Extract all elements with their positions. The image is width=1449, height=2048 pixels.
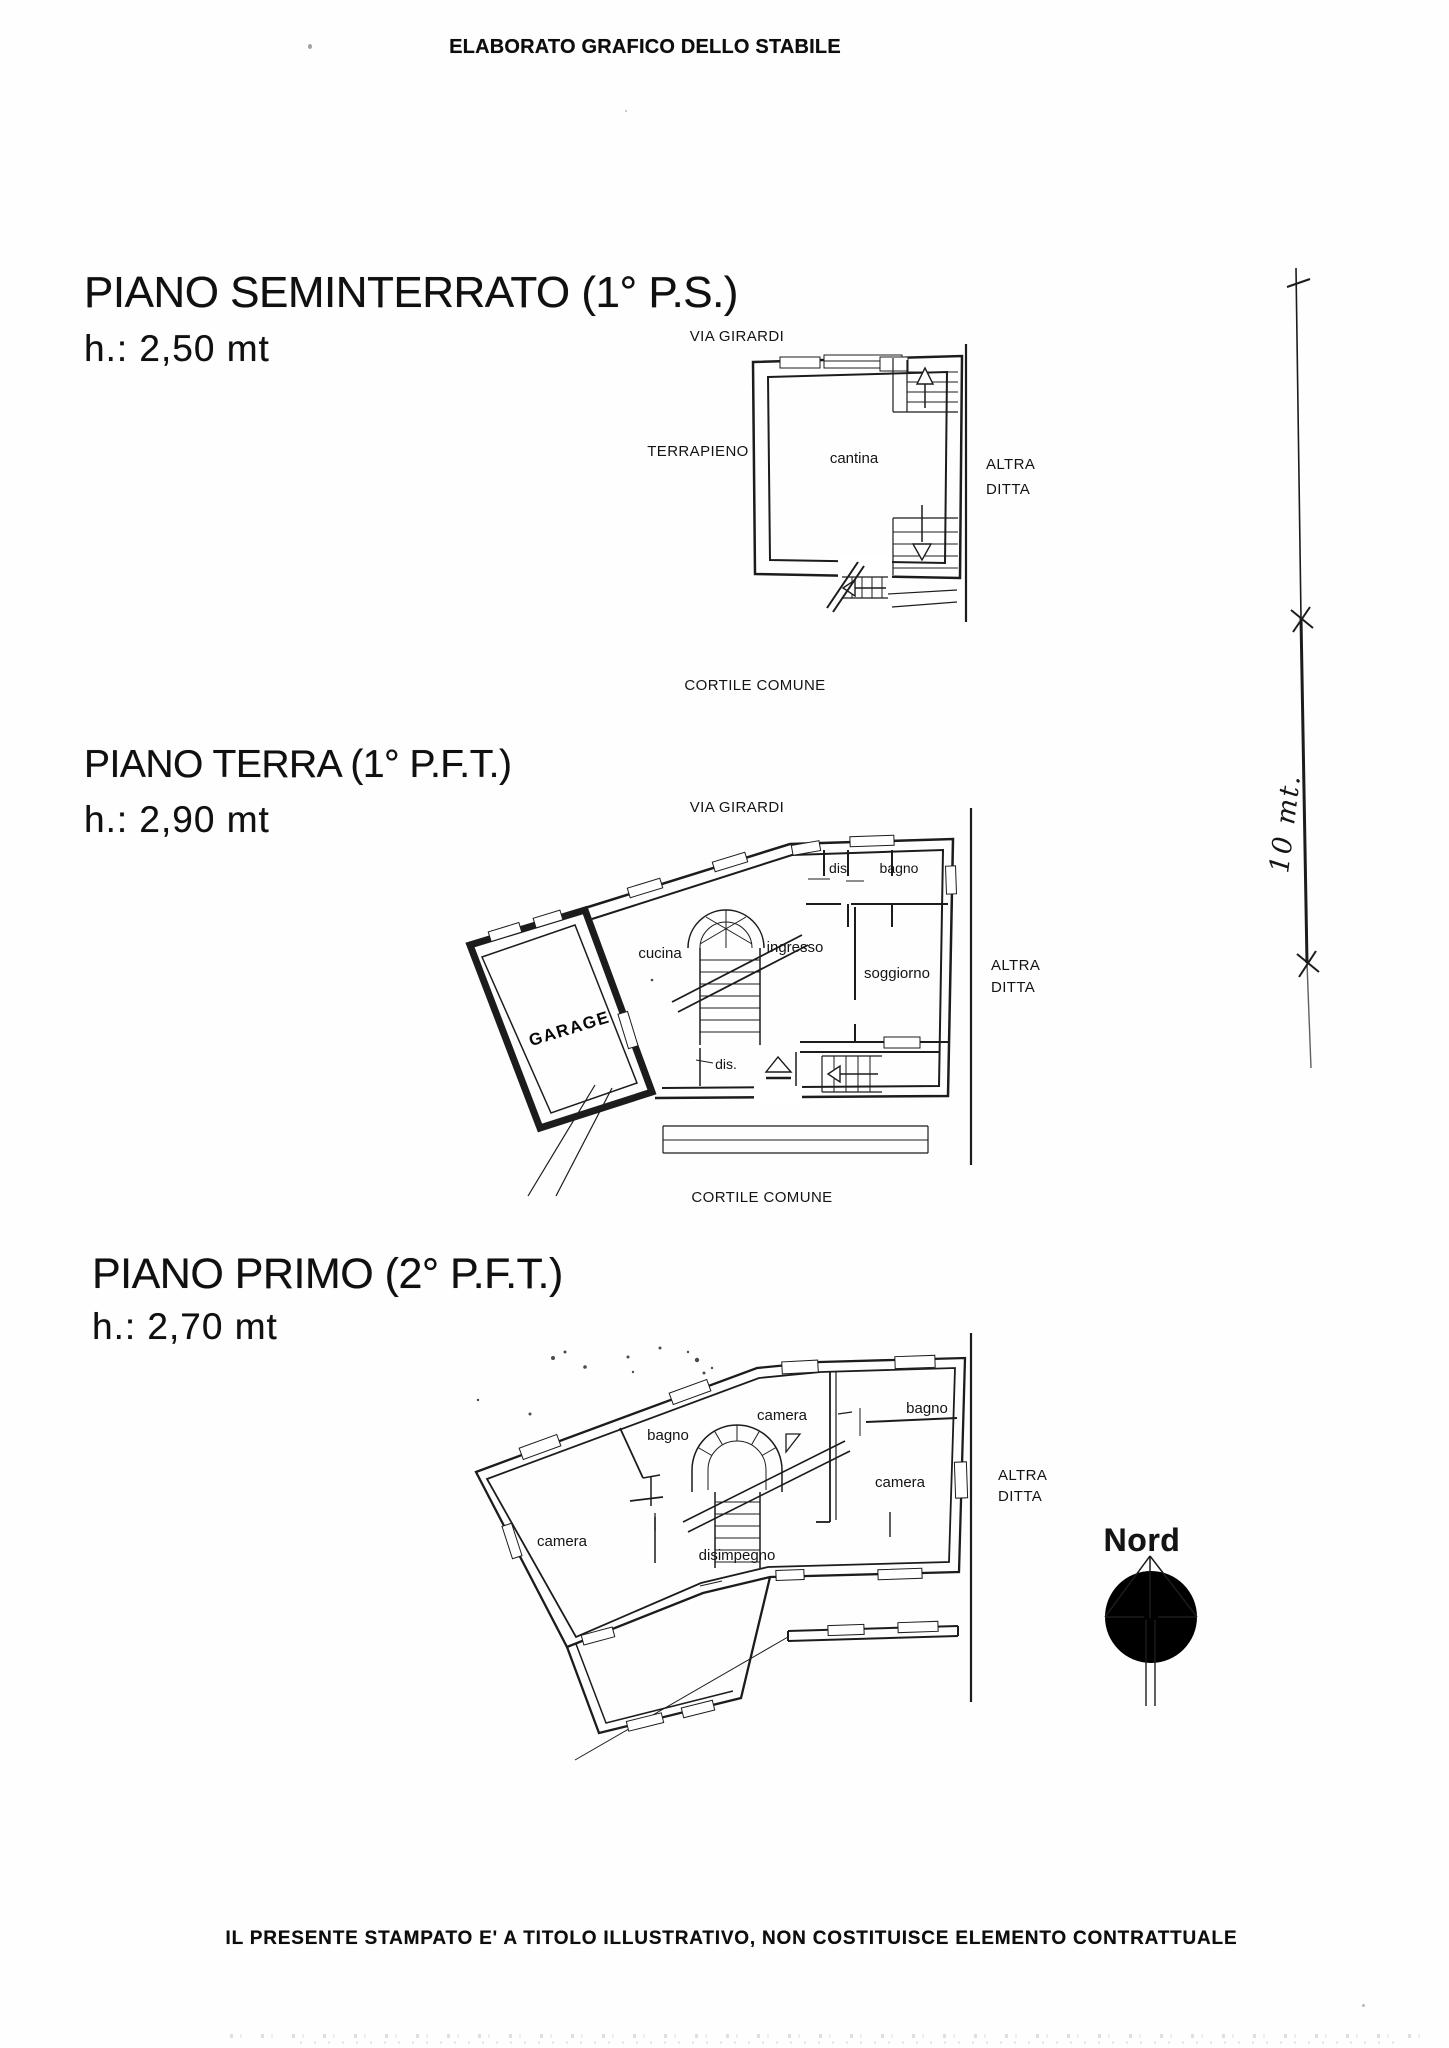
neighbor-label: ALTRA [998, 1467, 1047, 1484]
street-label: VIA GIRARDI [690, 799, 784, 816]
section-height-primo: h.: 2,70 mt [92, 1308, 278, 1345]
bath-label: bagno [647, 1427, 689, 1444]
courtyard-label: CORTILE COMUNE [684, 677, 825, 694]
section-height-seminterrato: h.: 2,50 mt [84, 330, 270, 367]
up-arrow-icon [917, 368, 933, 384]
living-room-label: soggiorno [864, 965, 930, 982]
dimension-line: 10 mt. [1250, 255, 1365, 1085]
dimension-line-marks [1287, 268, 1319, 1068]
hallway-label: disimpegno [699, 1547, 776, 1564]
footer-disclaimer: IL PRESENTE STAMPATO E' A TITOLO ILLUSTR… [0, 1928, 1449, 1950]
toilet-bath-partitions [806, 850, 948, 927]
bedroom-label: camera [537, 1533, 588, 1550]
garage-label: GARAGE [527, 1007, 613, 1050]
neighbor-label: DITTA [998, 1488, 1042, 1505]
dimension-measurement: 10 mt. [1264, 772, 1307, 875]
stairs-down [893, 505, 958, 575]
door-step-symbol [766, 1057, 791, 1078]
embankment-label: TERRAPIENO [647, 443, 749, 460]
compass-rose-icon [1105, 1556, 1197, 1706]
closet-label: dis [829, 860, 847, 876]
section-height-terra: h.: 2,90 mt [84, 801, 270, 838]
exterior-stairs [827, 556, 957, 612]
neighbor-label: DITTA [991, 979, 1035, 996]
section-title-primo: PIANO PRIMO (2° P.F.T.) [92, 1253, 563, 1296]
ground-floor-plan: VIA GIRARDI cucina ingresso soggiorno di… [360, 795, 1060, 1210]
kitchen-label: cucina [638, 945, 682, 962]
porch-steps [663, 1126, 928, 1153]
spiral-staircase [672, 910, 808, 1045]
scan-speck [1362, 2004, 1365, 2007]
neighbor-label: ALTRA [986, 456, 1035, 473]
courtyard-label: CORTILE COMUNE [691, 1189, 832, 1206]
basement-floor-plan: VIA GIRARDI TERRAPIENO cantina ALTRA DIT… [480, 320, 1060, 700]
section-title-terra: PIANO TERRA (1° P.F.T.) [84, 745, 511, 784]
bath-label: bagno [906, 1400, 948, 1417]
neighbor-label: DITTA [986, 481, 1030, 498]
street-label: VIA GIRARDI [690, 328, 784, 345]
garage-walls [470, 910, 652, 1196]
north-compass: Nord [1090, 1515, 1270, 1715]
neighbor-label: ALTRA [991, 957, 1040, 974]
first-floor-plan: bagno camera bagno camera camera disimpe… [360, 1330, 1060, 1790]
north-label: Nord [1104, 1522, 1181, 1558]
entry-label: ingresso [767, 939, 824, 956]
scan-noise-band [230, 2034, 1430, 2038]
page-title: ELABORATO GRAFICO DELLO STABILE [445, 36, 845, 59]
section-title-seminterrato: PIANO SEMINTERRATO (1° P.S.) [84, 271, 738, 315]
scanned-floor-plan-page: ELABORATO GRAFICO DELLO STABILE PIANO SE… [0, 0, 1449, 2048]
bath-label: bagno [880, 860, 919, 876]
scan-specks [477, 1347, 713, 1416]
bedroom-label: camera [757, 1407, 808, 1424]
bedroom-label: camera [875, 1474, 926, 1491]
closet-label: dis. [715, 1056, 737, 1072]
cellar-label: cantina [830, 450, 879, 467]
scan-speck [625, 110, 627, 112]
scan-noise-band [300, 2041, 1400, 2044]
down-arrow-icon [913, 544, 931, 560]
scan-speck [308, 44, 312, 49]
